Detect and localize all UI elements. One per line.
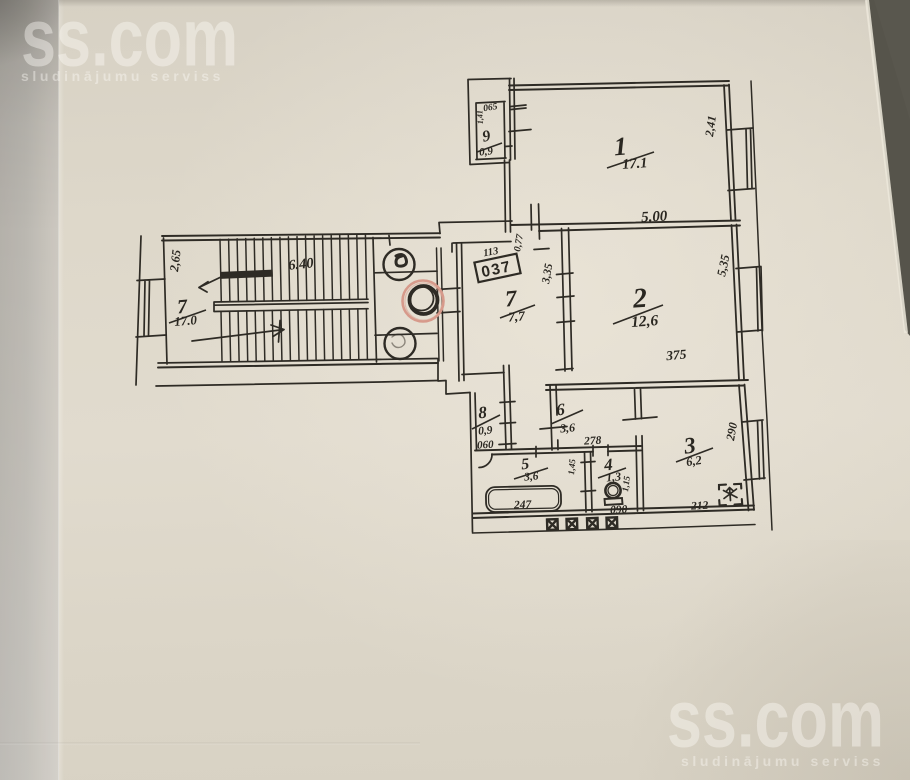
svg-text:065: 065 (483, 102, 499, 114)
svg-text:7,7: 7,7 (507, 308, 526, 325)
svg-text:278: 278 (583, 435, 602, 448)
svg-text:8: 8 (477, 403, 488, 423)
svg-text:0,9: 0,9 (478, 424, 494, 437)
svg-text:3,6: 3,6 (523, 470, 540, 483)
svg-text:5,35: 5,35 (714, 253, 732, 277)
svg-text:17.1: 17.1 (622, 155, 648, 173)
svg-text:1,15: 1,15 (620, 475, 632, 492)
svg-text:247: 247 (513, 499, 533, 512)
svg-text:5.00: 5.00 (641, 208, 669, 225)
svg-text:2,65: 2,65 (167, 249, 184, 273)
svg-text:2: 2 (631, 283, 648, 315)
svg-text:17.0: 17.0 (174, 312, 198, 329)
svg-text:3,35: 3,35 (540, 262, 556, 285)
svg-text:1,3: 1,3 (605, 469, 621, 484)
svg-text:375: 375 (665, 346, 688, 363)
svg-text:090: 090 (610, 504, 628, 517)
svg-text:3,6: 3,6 (559, 420, 576, 435)
svg-text:060: 060 (477, 439, 495, 452)
svg-text:7: 7 (504, 286, 519, 312)
svg-text:6: 6 (555, 400, 566, 420)
svg-text:290: 290 (723, 421, 740, 442)
svg-text:2,41: 2,41 (702, 115, 719, 139)
svg-text:9: 9 (481, 128, 492, 146)
svg-text:212: 212 (690, 500, 709, 513)
svg-text:0,9: 0,9 (479, 145, 494, 158)
svg-text:037: 037 (480, 258, 513, 281)
svg-text:1,41: 1,41 (475, 110, 485, 124)
svg-text:6,2: 6,2 (685, 453, 702, 469)
svg-text:1,45: 1,45 (566, 458, 577, 475)
svg-text:12,6: 12,6 (631, 312, 659, 331)
svg-text:0,77: 0,77 (512, 232, 526, 252)
svg-text:6.40: 6.40 (287, 255, 314, 274)
